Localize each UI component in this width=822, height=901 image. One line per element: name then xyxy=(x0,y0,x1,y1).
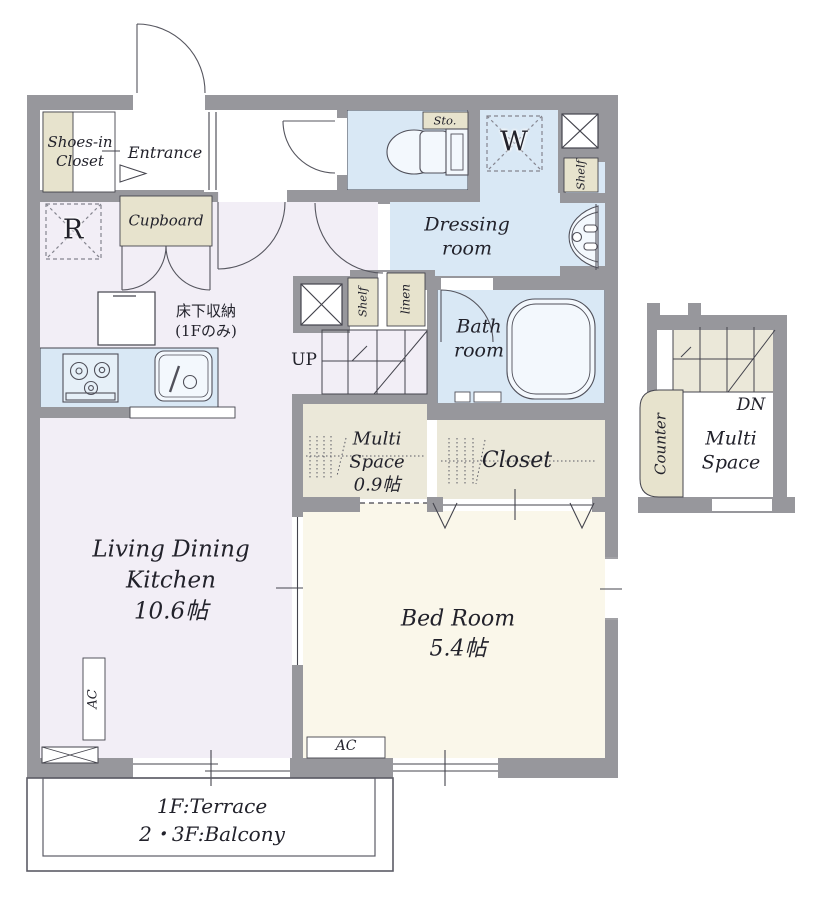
dressing-room-label: Dressing room xyxy=(424,213,510,262)
bath-door-opening xyxy=(441,278,493,290)
ldk-label: Living Dining Kitchen 10.6帖 xyxy=(92,534,249,627)
shelf-mid-label: Shelf xyxy=(356,287,371,317)
multi-space-annex-label: Multi Space xyxy=(702,427,760,476)
counter-label: Counter xyxy=(651,413,670,475)
linen-gap xyxy=(378,272,387,326)
washer-label: W xyxy=(500,126,528,161)
dressing-door-opening xyxy=(378,204,390,270)
stove-icon xyxy=(63,354,118,402)
bath-room-label: Bath room xyxy=(454,315,504,364)
shaft-top-right-icon xyxy=(562,114,598,148)
bedroom-label: Bed Room 5.4帖 xyxy=(401,604,515,663)
ac-ldk-label: AC xyxy=(86,689,103,708)
shoes-closet-label: Shoes-in Closet xyxy=(47,133,112,171)
multi-space-small-label: Multi Space 0.9帖 xyxy=(349,427,404,496)
terrace-label: 1F:Terrace 2・3F:Balcony xyxy=(139,792,285,848)
dn-label: DN xyxy=(737,395,766,417)
entrance-door-arc xyxy=(137,24,205,93)
sink-icon xyxy=(155,351,212,401)
corridor-floor xyxy=(287,202,380,276)
ldk-door-opening xyxy=(219,190,287,202)
entrance-door-opening xyxy=(133,95,205,110)
closet-label: Closet xyxy=(482,447,552,475)
floor-plan: Shoes-in Closet Entrance R Cupboard Sto.… xyxy=(0,0,822,901)
refrigerator-label: R xyxy=(63,214,83,249)
annex-window xyxy=(712,499,772,511)
shaft-mid-icon xyxy=(301,284,342,325)
kitchen-open-counter xyxy=(130,407,235,418)
cupboard-label: Cupboard xyxy=(128,211,203,230)
up-label: UP xyxy=(291,350,317,372)
ldk-floor xyxy=(40,190,293,760)
linen-label: linen xyxy=(398,284,413,314)
toilet-icon xyxy=(387,129,468,175)
floor-plan-drawing xyxy=(0,0,822,901)
sto-label: Sto. xyxy=(434,114,457,129)
underfloor-storage-box xyxy=(98,292,155,345)
shelf-top-label: Shelf xyxy=(574,160,589,190)
underfloor-storage-label: 床下収納 (1Fのみ) xyxy=(175,301,237,342)
toilet-door-opening xyxy=(337,118,347,175)
entrance-label: Entrance xyxy=(128,143,202,163)
shutter-box-icon xyxy=(42,747,98,763)
entrance-frame xyxy=(204,110,219,192)
ac-bedroom-label: AC xyxy=(336,738,357,756)
